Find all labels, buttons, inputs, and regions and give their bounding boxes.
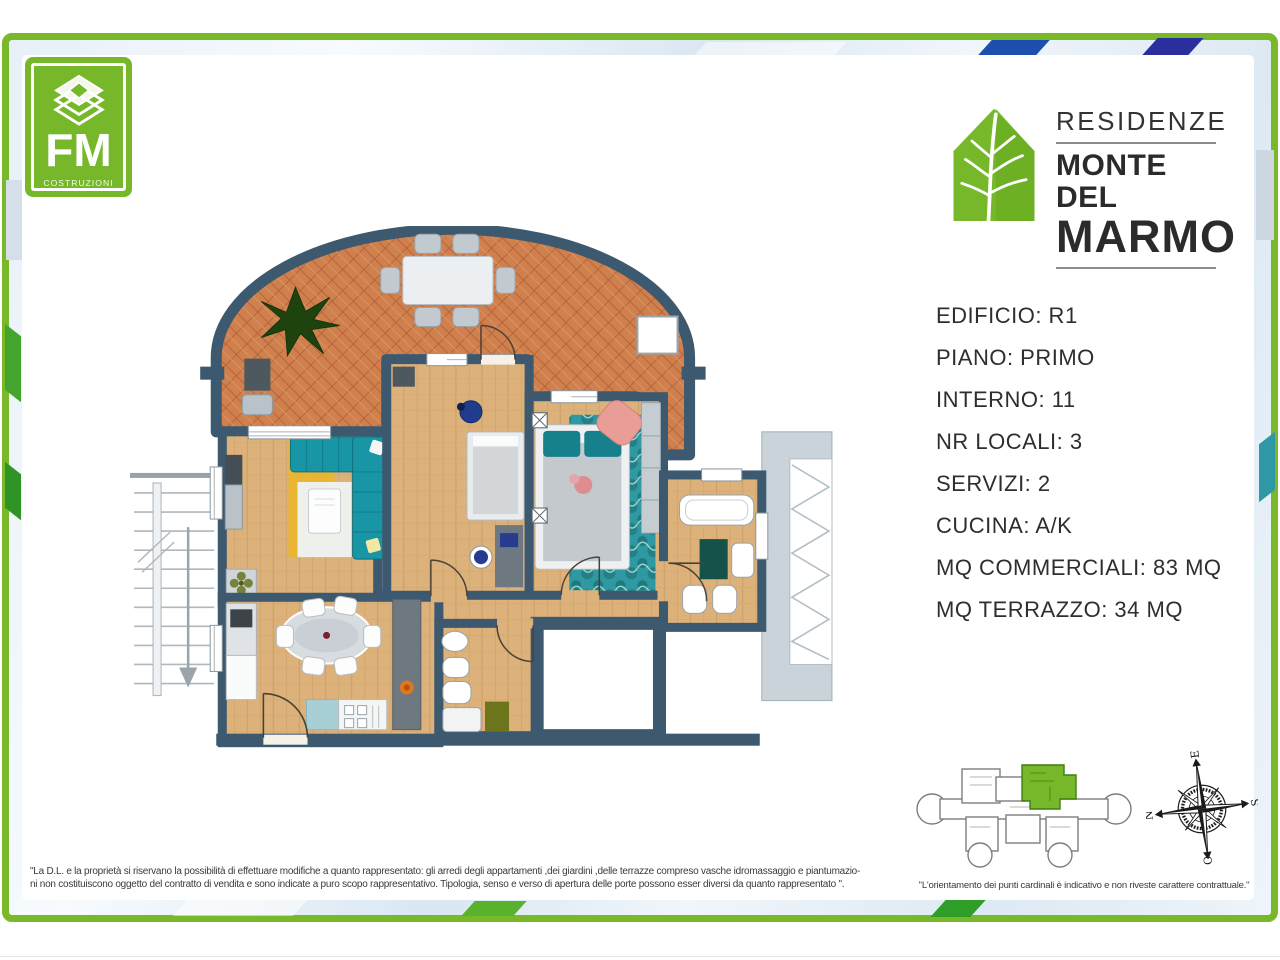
bathroom-2 (663, 475, 761, 627)
fridge (226, 655, 256, 699)
terrace-planter (637, 316, 677, 353)
cabinet (225, 485, 242, 529)
frame-accent-white-bottom (173, 900, 307, 916)
keyplan-caption: "L'orientamento dei punti cardinali è in… (906, 880, 1262, 891)
fm-logo-subtitle: COSTRUZIONI (43, 178, 113, 188)
frame-accent-gray-right (1256, 150, 1274, 240)
residence-title-line3: MARMO (1056, 214, 1228, 260)
terrace-desk (244, 359, 270, 391)
layered-diamond-icon (47, 74, 111, 126)
balcony (762, 432, 832, 701)
apartment-floorplan (130, 226, 842, 768)
compass-label-n: N (1146, 810, 1156, 822)
disclaimer-text: "La D.L. e la proprietà si riservano la … (30, 866, 902, 891)
kitchen-dining (222, 595, 439, 742)
tv-unit (225, 455, 242, 485)
disclaimer-line1: "La D.L. e la proprietà si riservano la … (30, 866, 902, 879)
building-keyplan (910, 756, 1138, 872)
detail-mq-commerciali: MQ COMMERCIALI: 83 MQ (936, 547, 1222, 589)
fm-logo-inner-border: FM COSTRUZIONI (31, 63, 126, 191)
compass-label-e: E (1188, 749, 1202, 759)
detail-locali: NR LOCALI: 3 (936, 421, 1222, 463)
single-bed (467, 432, 524, 520)
fm-costruzioni-logo: FM COSTRUZIONI (25, 57, 132, 197)
dresser (393, 367, 415, 387)
bidet (443, 657, 469, 677)
compass-label-o: O (1201, 855, 1215, 866)
toilet (443, 682, 471, 704)
bidet-2 (713, 585, 737, 613)
residence-logo: RESIDENZE MONTE DEL MARMO (1056, 106, 1228, 275)
study-room (387, 360, 529, 603)
residence-title-line2: MONTE DEL (1056, 150, 1228, 214)
green-mat (700, 539, 728, 579)
terrace-chair (242, 395, 272, 415)
compass-label-s: S (1249, 798, 1258, 807)
detail-piano: PIANO: PRIMO (936, 337, 1222, 379)
residence-rule-bottom (1056, 267, 1216, 269)
coffee-table (309, 489, 341, 533)
detail-mq-terrazzo: MQ TERRAZZO: 34 MQ (936, 589, 1222, 631)
master-bedroom (529, 396, 663, 602)
external-stairs (130, 473, 214, 696)
detail-servizi: SERVIZI: 2 (936, 463, 1222, 505)
sink (442, 631, 468, 651)
frame-accent-white-top (694, 42, 847, 56)
dark-counter (393, 599, 421, 729)
olive-mat (485, 702, 509, 732)
kitchen-counter (306, 700, 338, 730)
residence-title-line1: RESIDENZE (1056, 106, 1228, 137)
void-room (537, 623, 659, 735)
double-bed (535, 425, 629, 569)
leaf-house-icon (948, 100, 1040, 228)
disclaimer-line2: ni non costituiscono oggetto del contrat… (30, 879, 902, 892)
flyer-page: FM COSTRUZIONI RESIDENZE MONTE DEL MARMO… (0, 0, 1280, 960)
frame-accent-gray-left (6, 180, 22, 260)
toilet-2 (683, 585, 707, 613)
page-bottom-rule (0, 956, 1280, 957)
terrace-dining-table (403, 256, 493, 304)
fm-logo-wordmark: FM (45, 127, 111, 173)
unit-details-panel: EDIFICIO: R1 PIANO: PRIMO INTERNO: 11 NR… (936, 295, 1222, 631)
frame-accent-green-left1 (5, 324, 21, 403)
detail-cucina: CUCINA: A/K (936, 505, 1222, 547)
detail-edificio: EDIFICIO: R1 (936, 295, 1222, 337)
residence-rule-top (1056, 142, 1216, 144)
living-room (222, 432, 386, 602)
detail-interno: INTERNO: 11 (936, 379, 1222, 421)
sink-2 (732, 543, 754, 577)
compass-rose-icon: N E S O (1146, 748, 1258, 870)
shower (443, 708, 481, 732)
